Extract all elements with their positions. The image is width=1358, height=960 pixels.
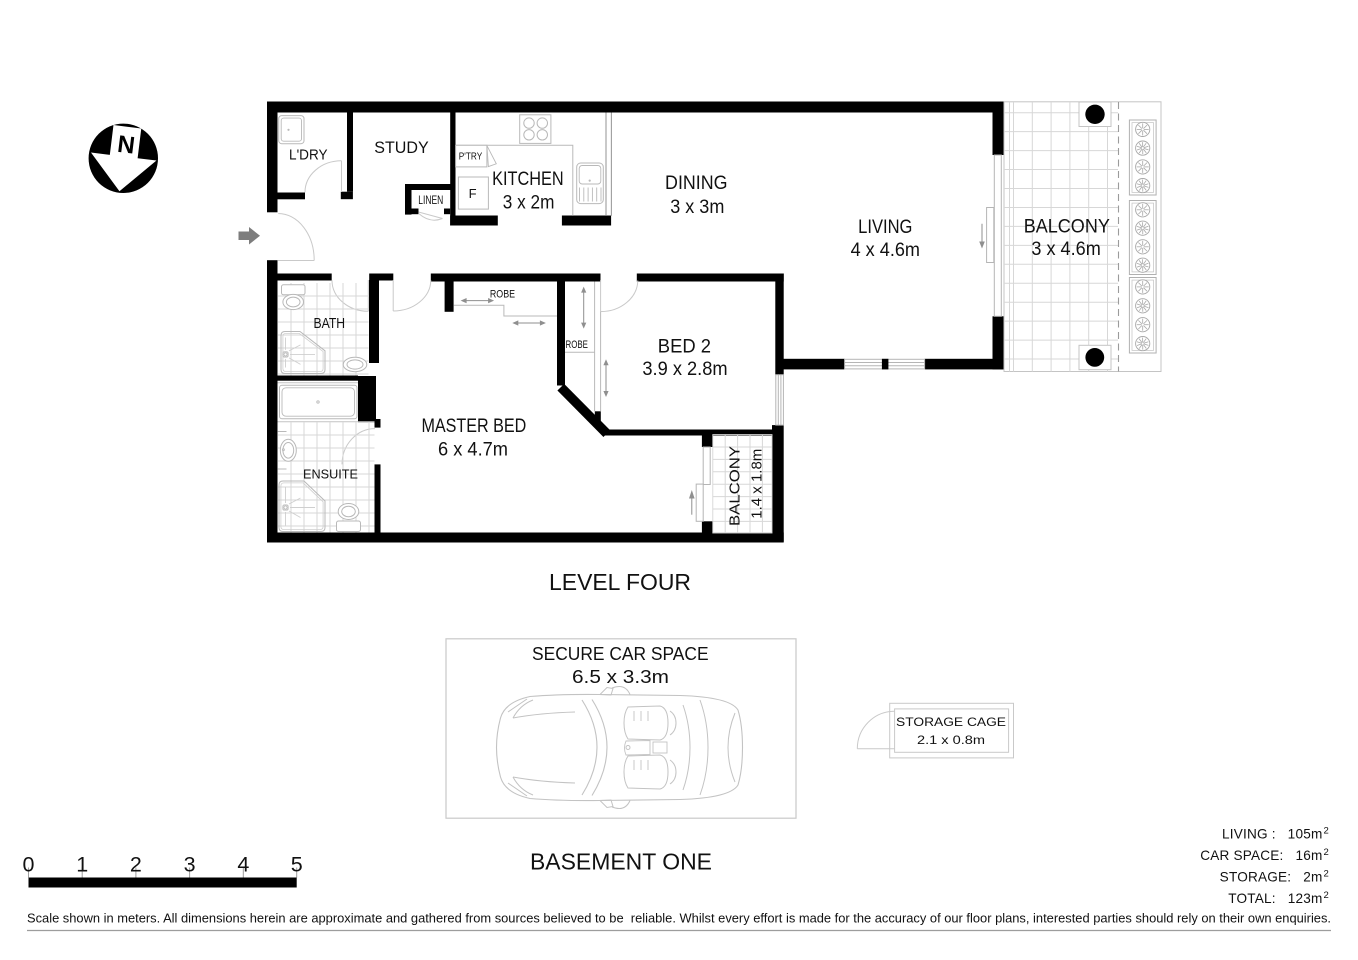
svg-text:STORAGE CAGE: STORAGE CAGE (896, 715, 1006, 729)
svg-text:L'DRY: L'DRY (289, 148, 328, 164)
svg-text:2: 2 (1324, 868, 1329, 879)
svg-text:Scale shown in meters. All dim: Scale shown in meters. All dimensions he… (27, 911, 1331, 926)
svg-text:1: 1 (76, 853, 88, 877)
svg-text:5: 5 (291, 853, 303, 877)
svg-text:BALCONY: BALCONY (727, 446, 744, 526)
svg-text:2: 2 (1324, 890, 1329, 901)
svg-text:4 x 4.6m: 4 x 4.6m (851, 239, 920, 261)
svg-text:P'TRY: P'TRY (459, 152, 483, 163)
svg-text:DINING: DINING (665, 172, 728, 194)
svg-text:6.5 x 3.3m: 6.5 x 3.3m (572, 666, 669, 687)
svg-text:BED 2: BED 2 (658, 335, 711, 357)
svg-text:2: 2 (1324, 847, 1329, 858)
svg-text:BASEMENT ONE: BASEMENT ONE (530, 849, 712, 875)
svg-text:ROBE: ROBE (490, 289, 515, 301)
svg-text:LIVING : 105m: LIVING : 105m (1222, 826, 1322, 841)
svg-text:ENSUITE: ENSUITE (303, 466, 358, 481)
svg-text:LIVING: LIVING (858, 216, 912, 238)
svg-text:6 x 4.7m: 6 x 4.7m (438, 439, 508, 461)
svg-text:STORAGE: 2m: STORAGE: 2m (1220, 869, 1323, 884)
svg-text:STUDY: STUDY (374, 138, 428, 157)
svg-text:BALCONY: BALCONY (1024, 215, 1110, 237)
svg-text:LINEN: LINEN (418, 195, 443, 207)
svg-text:3 x 3m: 3 x 3m (670, 196, 724, 218)
svg-text:2.1 x 0.8m: 2.1 x 0.8m (917, 733, 985, 747)
svg-text:CAR SPACE: 16m: CAR SPACE: 16m (1200, 848, 1322, 863)
svg-text:N: N (116, 131, 137, 160)
svg-text:KITCHEN: KITCHEN (492, 168, 564, 190)
svg-text:LEVEL FOUR: LEVEL FOUR (549, 569, 691, 595)
svg-text:SECURE CAR SPACE: SECURE CAR SPACE (532, 643, 709, 664)
svg-text:2: 2 (130, 853, 142, 877)
svg-text:3: 3 (184, 853, 196, 877)
svg-text:TOTAL: 123m: TOTAL: 123m (1228, 891, 1322, 906)
svg-text:3 x 2m: 3 x 2m (503, 192, 555, 214)
svg-text:2: 2 (1324, 825, 1329, 836)
svg-text:F: F (469, 186, 477, 201)
svg-text:3.9 x 2.8m: 3.9 x 2.8m (642, 358, 727, 380)
svg-text:1.4 x 1.8m: 1.4 x 1.8m (749, 449, 766, 519)
svg-text:ROBE: ROBE (566, 339, 588, 351)
svg-text:MASTER BED: MASTER BED (421, 415, 526, 437)
svg-text:3 x 4.6m: 3 x 4.6m (1031, 238, 1100, 260)
svg-text:BATH: BATH (314, 316, 346, 332)
svg-text:0: 0 (23, 853, 35, 877)
svg-text:4: 4 (237, 853, 249, 877)
